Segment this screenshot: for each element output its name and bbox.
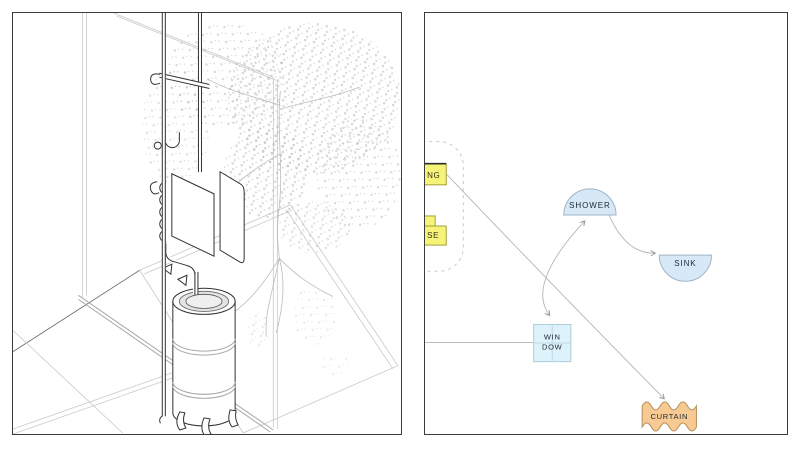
lower-bends [163,244,198,294]
box-bottom-label: SE [427,231,439,240]
left-drawing-panel [12,12,402,435]
shower-label: SHOWER [569,201,611,210]
concept-diagram: NG SE SHOWER SINK WIN DOW CU [425,13,787,434]
diagram-arrows [425,174,664,399]
coil-heat-exchanger [160,174,214,256]
water-tank [173,288,238,434]
arrow-shower-to-sink [609,215,655,253]
node-clipped-box-bottom: SE [425,216,446,245]
dashed-group-outline [425,142,463,272]
pipe-right [198,13,201,172]
arrow-window-shower [543,221,585,315]
window-label-line2: DOW [542,343,563,352]
node-shower: SHOWER [564,189,616,215]
axonometric-detail-drawing [13,13,401,434]
slide-canvas: { "canvas": { "background": "#ffffff", "… [0,0,800,450]
curtain-label: CURTAIN [650,412,688,421]
node-curtain: CURTAIN [642,402,696,431]
node-clipped-box-top: NG [425,164,446,185]
box-top-label: NG [427,171,440,180]
right-diagram-panel: NG SE SHOWER SINK WIN DOW CU [424,12,788,435]
sink-label: SINK [674,259,696,268]
node-window: WIN DOW [534,324,571,361]
arrow-box-to-curtain [446,174,664,399]
flap-panel [220,172,244,263]
window-label-line1: WIN [544,333,561,342]
node-sink: SINK [659,255,711,281]
